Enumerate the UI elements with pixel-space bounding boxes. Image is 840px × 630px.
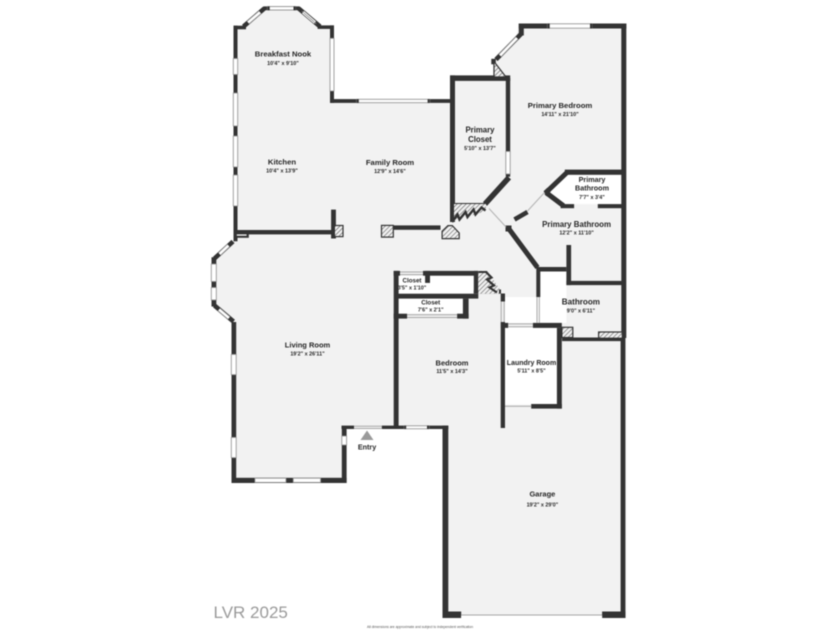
svg-text:LVR 2025: LVR 2025 [214,603,288,622]
svg-text:19'2" x 29'0": 19'2" x 29'0" [527,503,559,509]
svg-text:9'0" x 6'11": 9'0" x 6'11" [567,309,596,315]
svg-text:Primary: Primary [579,175,606,184]
svg-text:Primary Bedroom: Primary Bedroom [528,101,593,110]
svg-text:5'11" x 8'5": 5'11" x 8'5" [517,369,546,375]
svg-text:14'11" x 21'10": 14'11" x 21'10" [541,112,579,118]
svg-text:10'4" x 9'10": 10'4" x 9'10" [267,61,299,67]
svg-text:Family Room: Family Room [366,158,414,167]
svg-text:10'4" x 13'9": 10'4" x 13'9" [266,169,298,175]
svg-text:Closet: Closet [421,300,440,307]
svg-text:5'10" x 13'7": 5'10" x 13'7" [464,146,496,152]
svg-text:3'5" x 1'10": 3'5" x 1'10" [398,286,427,292]
svg-text:Primary Bathroom: Primary Bathroom [542,220,611,229]
svg-text:7'7" x 3'4": 7'7" x 3'4" [579,195,605,201]
svg-text:12'9" x 14'6": 12'9" x 14'6" [374,169,406,175]
svg-text:Entry: Entry [358,442,376,451]
svg-text:Breakfast Nook: Breakfast Nook [255,50,312,59]
svg-text:Primary: Primary [465,125,495,134]
svg-text:12'2" x 11'10": 12'2" x 11'10" [559,231,594,237]
svg-text:All dimensions are approximate: All dimensions are approximate and subje… [367,625,473,629]
svg-text:Bedroom: Bedroom [436,359,469,368]
svg-text:Living Room: Living Room [285,340,331,349]
svg-text:11'5" x 14'3": 11'5" x 14'3" [436,369,468,375]
svg-text:7'6" x 2'1": 7'6" x 2'1" [418,307,444,313]
svg-text:19'2" x 26'11": 19'2" x 26'11" [290,351,325,357]
svg-text:Closet: Closet [468,135,492,144]
svg-text:Laundry Room: Laundry Room [507,360,556,367]
svg-text:Bathroom: Bathroom [575,184,609,193]
svg-text:Kitchen: Kitchen [268,158,296,167]
svg-text:Garage: Garage [529,490,555,499]
svg-text:Bathroom: Bathroom [562,297,600,306]
svg-text:Closet: Closet [403,277,422,284]
